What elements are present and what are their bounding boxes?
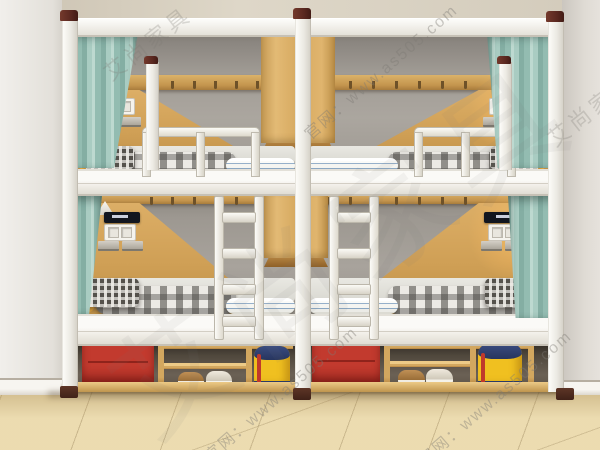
- inner-post-cap-left: [144, 56, 158, 64]
- organizer-divider: [470, 342, 476, 386]
- red-suitcase-right: [312, 339, 380, 386]
- frame-post-center: [295, 18, 311, 392]
- post-cap-right: [546, 11, 564, 22]
- power-socket: [104, 224, 136, 241]
- coat-hooks: [326, 81, 467, 89]
- organizer-shelf: [390, 361, 472, 367]
- frame-post-left: [62, 18, 78, 390]
- top-beam: [62, 18, 562, 37]
- post-cap-center: [293, 8, 311, 19]
- post-foot-left: [60, 386, 78, 398]
- inner-post-left: [146, 62, 159, 170]
- organizer-divider: [246, 342, 252, 386]
- left-wall: [0, 0, 62, 394]
- guard-rail-left: [142, 127, 260, 177]
- ladder-right: [329, 196, 379, 340]
- right-wall: [562, 0, 600, 394]
- red-suitcase-left: [82, 340, 154, 386]
- post-foot-right: [556, 388, 574, 400]
- organizer-side-board: [528, 342, 534, 386]
- wall-shelf: [98, 241, 143, 251]
- post-cap-left: [60, 10, 78, 21]
- post-foot-center: [293, 388, 311, 400]
- tiled-floor: [0, 392, 600, 450]
- inner-post-cap-right: [497, 56, 511, 64]
- dorm-bunk-bed-photo: 艾尚家具 艾尚家具 官网：www.as505.com 艾尚家具 官网：www.a…: [0, 0, 600, 450]
- lower-bed-deck: [62, 314, 562, 346]
- organizer-shelf: [164, 363, 246, 369]
- frame-post-right: [548, 18, 564, 392]
- control-panel: [104, 212, 140, 223]
- storage-bottom-board: [62, 382, 562, 392]
- inner-post-right: [499, 62, 512, 170]
- ladder-left: [214, 196, 264, 340]
